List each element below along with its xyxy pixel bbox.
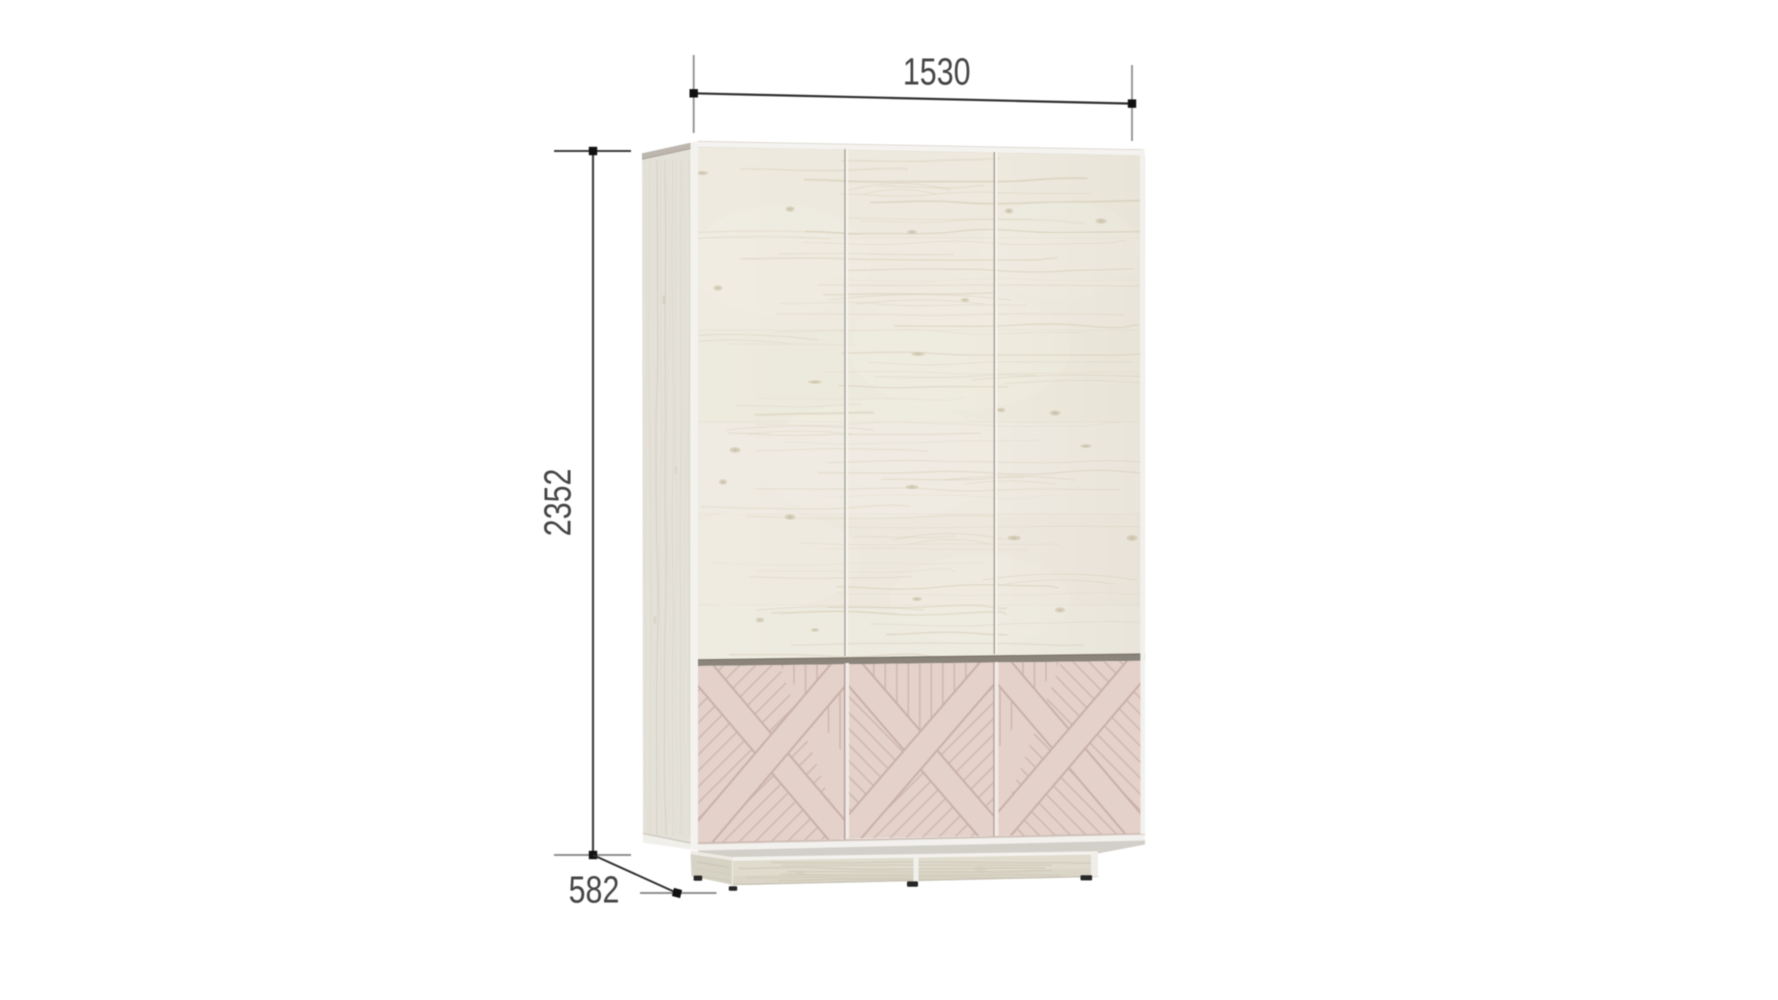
svg-text:2352: 2352 [537, 469, 579, 537]
svg-text:582: 582 [569, 869, 620, 911]
svg-text:1530: 1530 [903, 51, 971, 93]
